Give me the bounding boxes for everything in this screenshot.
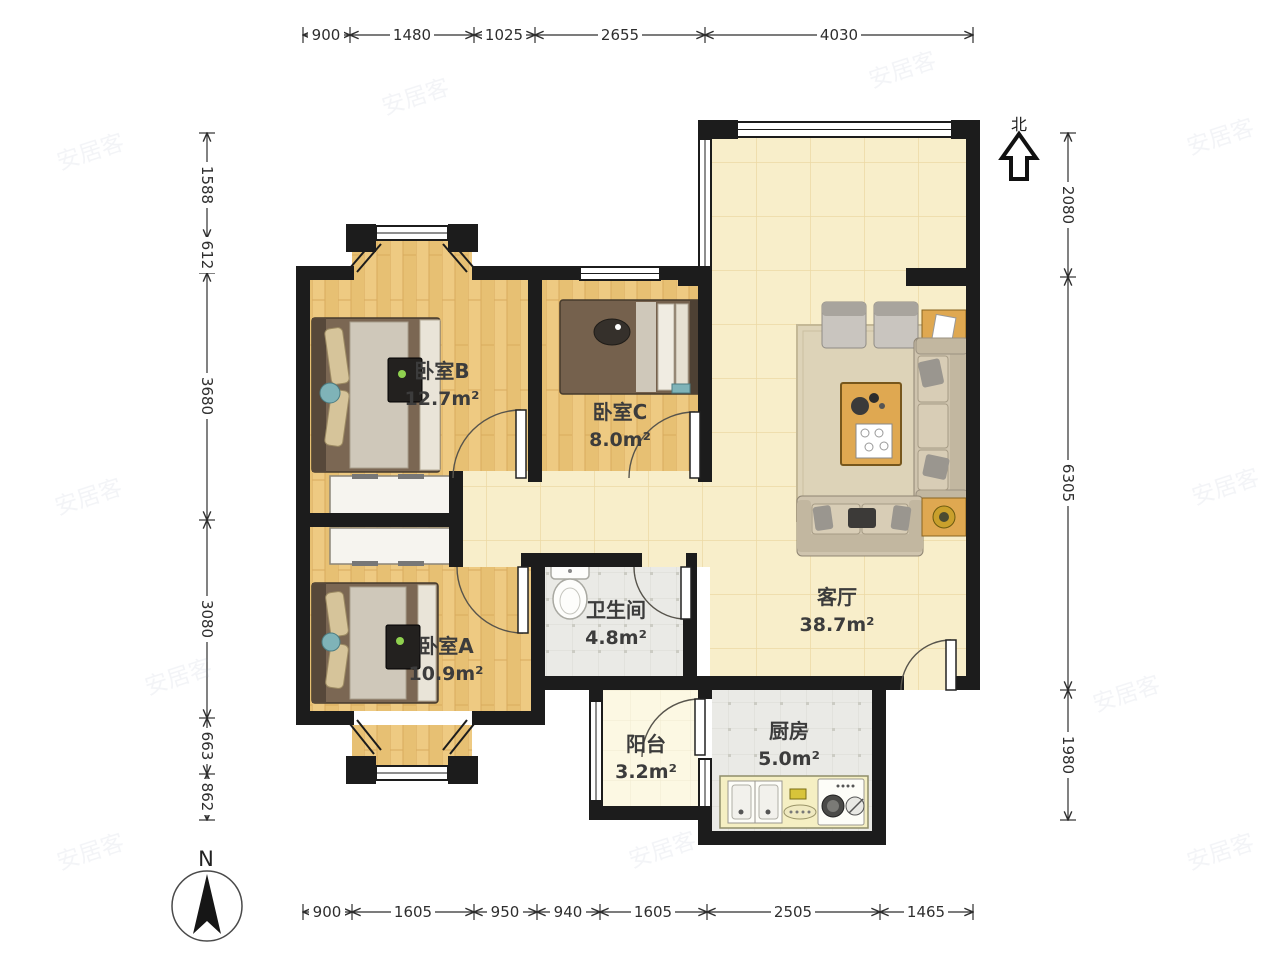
watermark-text: 安居客 xyxy=(1184,115,1258,161)
round-cushion xyxy=(320,383,340,403)
bathroom-area: 4.8m² xyxy=(585,627,647,649)
wall-segment xyxy=(698,120,738,139)
wardrobe-handle xyxy=(352,561,378,566)
loveseat-armrest xyxy=(797,500,811,552)
wall-segment xyxy=(712,676,904,690)
loveseat-back xyxy=(803,534,917,552)
dim-chain-left xyxy=(199,133,215,820)
toilet-bowl xyxy=(553,579,587,619)
dim-label: 1465 xyxy=(907,903,945,921)
throw-pillow xyxy=(890,505,911,531)
armchair-back xyxy=(874,302,918,316)
wall-segment xyxy=(472,711,545,725)
dim-label: 2655 xyxy=(601,26,639,44)
bathroom-label: 卫生间 xyxy=(586,598,646,622)
cup xyxy=(879,403,885,409)
wall-segment xyxy=(448,224,478,252)
dim-label: 6305 xyxy=(1059,464,1077,502)
wardrobe-handle xyxy=(352,474,378,479)
watermark-text: 安居客 xyxy=(1090,672,1164,718)
watermark-text: 安居客 xyxy=(866,48,940,94)
pillow xyxy=(676,304,688,390)
compass: N xyxy=(172,847,242,941)
wall-segment xyxy=(531,676,712,690)
floor-plan-page: 卧室B 12.7m² 卧室C 8.0m² 客厅 38.7m² 卧室A 10.9m… xyxy=(0,0,1280,960)
door-leaf-bathroom xyxy=(681,567,691,619)
wall-segment xyxy=(448,756,478,784)
watermark-text: 安居客 xyxy=(142,655,216,701)
tray-dot xyxy=(796,811,799,814)
bedroom-b-label: 卧室B xyxy=(414,359,469,383)
indicator-dot xyxy=(396,637,404,645)
dim-label: 1605 xyxy=(634,903,672,921)
balcony-label: 阳台 xyxy=(626,732,666,756)
wardrobe-a xyxy=(330,528,450,564)
wall-segment xyxy=(346,756,376,784)
laptop xyxy=(848,508,876,528)
dim-label: 1980 xyxy=(1059,736,1077,774)
dim-label: 950 xyxy=(491,903,520,921)
dim-label: 1025 xyxy=(485,26,523,44)
watermark-text: 安居客 xyxy=(1189,465,1263,511)
stove-knob xyxy=(852,785,855,788)
hallway-floor xyxy=(463,471,712,567)
wall-segment xyxy=(686,553,697,567)
wardrobe-handle xyxy=(398,561,424,566)
bedroom-b-furniture xyxy=(312,318,450,514)
round-cushion xyxy=(322,633,340,651)
bedroom-a-label: 卧室A xyxy=(418,634,474,658)
dim-label: 1605 xyxy=(394,903,432,921)
book xyxy=(932,314,956,341)
wall-segment xyxy=(296,266,354,280)
tray-dot xyxy=(790,811,793,814)
wall-segment xyxy=(698,690,712,699)
dim-label: 3080 xyxy=(198,600,216,638)
floor-plan-svg: 卧室B 12.7m² 卧室C 8.0m² 客厅 38.7m² 卧室A 10.9m… xyxy=(0,0,1280,960)
kitchen-area: 5.0m² xyxy=(758,748,820,770)
bathroom-fixtures xyxy=(551,562,589,619)
sofa-armrest xyxy=(916,338,968,354)
cushion-dot xyxy=(615,324,621,330)
north-arrow-icon xyxy=(1002,134,1036,179)
dim-label: 2505 xyxy=(774,903,812,921)
watermark-text: 安居客 xyxy=(1184,830,1258,876)
door-leaf-entry xyxy=(946,640,956,690)
watermark-text: 安居客 xyxy=(379,75,453,121)
wall-segment xyxy=(589,690,603,702)
wardrobe-handle xyxy=(398,474,424,479)
stove-knob xyxy=(842,785,845,788)
armchair-back xyxy=(822,302,866,316)
soap-box xyxy=(790,789,806,799)
wall-segment xyxy=(346,224,376,252)
bedroom-c-area: 8.0m² xyxy=(589,429,651,451)
drain xyxy=(739,810,744,815)
bed-c-duvet xyxy=(636,302,656,392)
loveseat-armrest xyxy=(909,500,923,552)
pillow xyxy=(658,304,674,390)
bedroom-c-furniture xyxy=(560,300,702,394)
wall-segment xyxy=(678,266,712,286)
indicator-dot xyxy=(398,370,406,378)
burner-center xyxy=(827,800,839,812)
stove-knob xyxy=(847,785,850,788)
dim-label: 900 xyxy=(313,903,342,921)
kitchen-fixtures xyxy=(720,776,868,828)
wall-segment xyxy=(872,690,886,845)
throw-pillow xyxy=(812,505,833,531)
dim-label: 663 xyxy=(198,732,216,761)
tray-dot xyxy=(802,811,805,814)
bedroom-c-label: 卧室C xyxy=(593,400,648,424)
sofa-back xyxy=(950,344,966,500)
wall-segment xyxy=(296,711,354,725)
bedroom-b-area: 12.7m² xyxy=(405,388,480,410)
plant-center xyxy=(939,512,949,522)
dim-label: 862 xyxy=(198,783,216,812)
watermark-text: 安居客 xyxy=(54,830,128,876)
dim-label: 612 xyxy=(198,241,216,270)
wall-segment xyxy=(528,280,542,482)
wardrobe-b xyxy=(330,476,450,514)
wall-segment xyxy=(472,266,580,280)
wall-segment xyxy=(698,831,886,845)
bedroom-a-area: 10.9m² xyxy=(409,663,484,685)
door-leaf-bedroom-a xyxy=(518,567,528,633)
balcony-area: 3.2m² xyxy=(615,761,677,783)
wall-segment xyxy=(906,268,980,286)
sofa-cushion xyxy=(918,404,948,448)
dim-label: 940 xyxy=(554,903,583,921)
dish-tray xyxy=(784,805,816,819)
watermark-text: 安居客 xyxy=(54,130,128,176)
drain xyxy=(766,810,771,815)
dim-label: 4030 xyxy=(820,26,858,44)
dim-label: 1480 xyxy=(393,26,431,44)
wall-segment xyxy=(296,513,463,527)
watermark-text: 安居客 xyxy=(52,475,126,521)
wall-segment xyxy=(589,806,712,820)
wall-segment xyxy=(296,266,310,725)
door-leaf-bedroom-b xyxy=(516,410,526,478)
wall-segment xyxy=(545,553,642,567)
dim-label: 3680 xyxy=(198,377,216,415)
living-room-label: 客厅 xyxy=(816,585,857,609)
dim-label: 900 xyxy=(312,26,341,44)
toilet-button xyxy=(568,569,572,573)
stove-knob xyxy=(837,785,840,788)
kitchen-label: 厨房 xyxy=(769,719,809,743)
living-room-furniture xyxy=(797,302,970,556)
door-leaf-balcony xyxy=(695,699,705,755)
living-room-area: 38.7m² xyxy=(800,614,875,636)
teapot xyxy=(851,397,869,415)
cup xyxy=(869,393,879,403)
north-indicator: 北 xyxy=(1002,115,1036,179)
wall-segment xyxy=(966,120,980,690)
wall-segment xyxy=(531,553,545,725)
dim-label: 2080 xyxy=(1059,186,1077,224)
tray xyxy=(856,424,892,458)
bed-bench xyxy=(672,384,690,393)
door-leaf-bedroom-c xyxy=(690,412,700,478)
tray-dot xyxy=(808,811,811,814)
watermark-text: 安居客 xyxy=(626,828,700,874)
round-cushion-dark xyxy=(594,319,630,345)
compass-n-label: N xyxy=(198,847,214,871)
dim-label: 1588 xyxy=(198,166,216,204)
